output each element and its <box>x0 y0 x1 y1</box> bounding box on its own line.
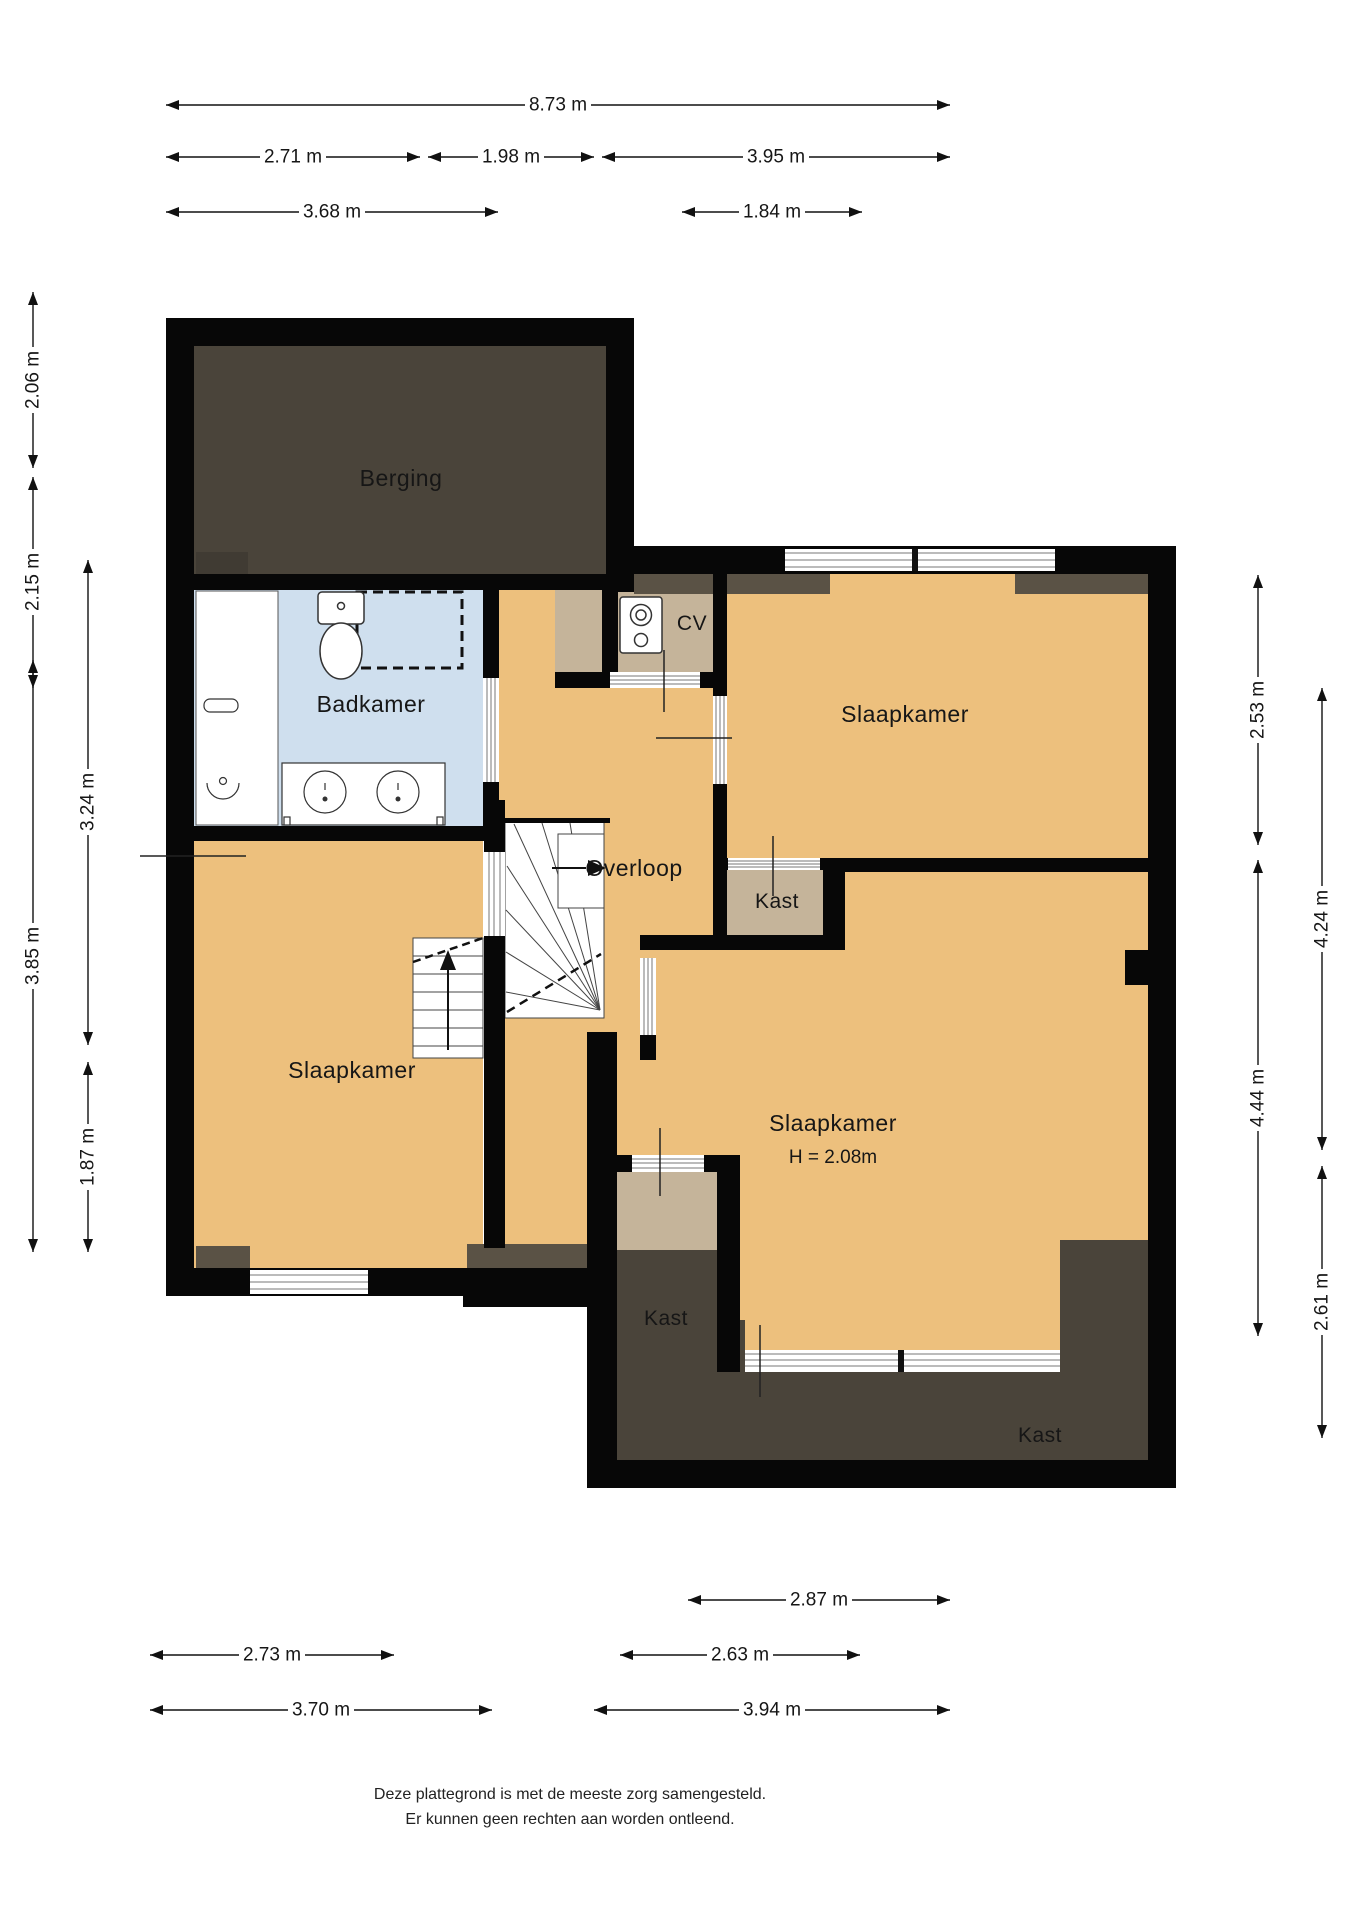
dimension: 3.24 m <box>77 560 99 1045</box>
room-label-overloop: Overloop <box>585 855 682 881</box>
svg-text:1.87 m: 1.87 m <box>78 1128 99 1186</box>
door <box>610 672 700 688</box>
svg-text:1.98 m: 1.98 m <box>482 147 540 168</box>
room-label-kast-overloop: Kast <box>755 890 799 913</box>
door <box>484 852 505 936</box>
kast-vestibule-floor <box>617 1172 717 1250</box>
dimension: 3.95 m <box>602 146 950 168</box>
dimension: 2.71 m <box>166 146 420 168</box>
svg-text:2.61 m: 2.61 m <box>1312 1273 1333 1331</box>
dimension: 2.15 m <box>22 477 44 688</box>
dimension: 1.98 m <box>428 146 594 168</box>
interior-window <box>640 958 656 1035</box>
room-label-cv: CV <box>677 612 707 635</box>
floorplan-page: Berging Badkamer CV Overloop Slaapkamer … <box>0 0 1358 1920</box>
footer-line-1: Deze plattegrond is met de meeste zorg s… <box>374 1786 766 1803</box>
svg-text:2.73 m: 2.73 m <box>243 1645 301 1666</box>
room-label-slaapkamer-zuid: Slaapkamer <box>769 1110 897 1136</box>
svg-text:8.73 m: 8.73 m <box>529 95 587 116</box>
dimension: 2.87 m <box>688 1589 950 1611</box>
svg-text:3.95 m: 3.95 m <box>747 147 805 168</box>
window <box>785 549 1055 571</box>
svg-text:2.63 m: 2.63 m <box>711 1645 769 1666</box>
dimension: 1.87 m <box>77 1062 99 1252</box>
boiler-icon <box>620 597 662 653</box>
corridor-floor <box>501 1060 587 1248</box>
berging-detail <box>196 552 248 574</box>
footer: Deze plattegrond is met de meeste zorg s… <box>374 1786 766 1828</box>
dimension: 3.70 m <box>150 1699 492 1721</box>
svg-text:3.24 m: 3.24 m <box>78 773 99 831</box>
berging-floor <box>194 346 606 574</box>
dimension: 2.61 m <box>1311 1166 1333 1438</box>
door <box>632 1155 704 1172</box>
door <box>483 678 499 782</box>
door <box>728 858 820 870</box>
room-label-berging: Berging <box>360 465 443 491</box>
room-label-slaapkamer-noord: Slaapkamer <box>841 701 969 727</box>
room-label-kast-midden: Kast <box>644 1307 688 1330</box>
door <box>713 696 727 784</box>
room-label-kast-zuid: Kast <box>1018 1424 1062 1447</box>
toilet-icon <box>318 592 364 679</box>
window <box>250 1270 368 1294</box>
room-label-badkamer: Badkamer <box>317 691 426 717</box>
dimension: 2.63 m <box>620 1644 860 1666</box>
svg-text:4.24 m: 4.24 m <box>1312 890 1333 948</box>
dimension: 3.94 m <box>594 1699 950 1721</box>
dark-block <box>1060 1240 1148 1372</box>
svg-text:4.44 m: 4.44 m <box>1248 1069 1269 1127</box>
svg-text:3.85 m: 3.85 m <box>23 927 44 985</box>
ceiling-strip <box>1015 574 1148 594</box>
dimension: 3.85 m <box>22 660 44 1252</box>
dimension: 2.53 m <box>1247 575 1269 845</box>
ceiling-strip <box>196 1246 250 1268</box>
room-height-note: H = 2.08m <box>789 1147 877 1168</box>
door-handle <box>204 699 238 712</box>
svg-text:2.15 m: 2.15 m <box>23 553 44 611</box>
sink-counter <box>282 763 445 825</box>
footer-line-2: Er kunnen geen rechten aan worden ontlee… <box>405 1811 734 1828</box>
ceiling-strip <box>634 574 830 594</box>
floor-plan-svg: Berging Badkamer CV Overloop Slaapkamer … <box>0 0 1358 1920</box>
svg-text:3.68 m: 3.68 m <box>303 202 361 223</box>
svg-text:2.71 m: 2.71 m <box>264 147 322 168</box>
svg-text:3.70 m: 3.70 m <box>292 1700 350 1721</box>
svg-text:2.06 m: 2.06 m <box>23 351 44 409</box>
svg-text:3.94 m: 3.94 m <box>743 1700 801 1721</box>
room-label-slaapkamer-west: Slaapkamer <box>288 1057 416 1083</box>
dimension: 2.06 m <box>22 292 44 468</box>
kast-zuid-floor <box>617 1372 1148 1462</box>
window <box>745 1350 1060 1372</box>
svg-text:1.84 m: 1.84 m <box>743 202 801 223</box>
dimension: 2.73 m <box>150 1644 394 1666</box>
dimension: 8.73 m <box>166 94 950 116</box>
dimension: 4.44 m <box>1247 860 1269 1336</box>
dimension: 3.68 m <box>166 201 498 223</box>
dimension: 1.84 m <box>682 201 862 223</box>
dimension: 4.24 m <box>1311 688 1333 1150</box>
svg-text:2.87 m: 2.87 m <box>790 1590 848 1611</box>
svg-text:2.53 m: 2.53 m <box>1248 681 1269 739</box>
